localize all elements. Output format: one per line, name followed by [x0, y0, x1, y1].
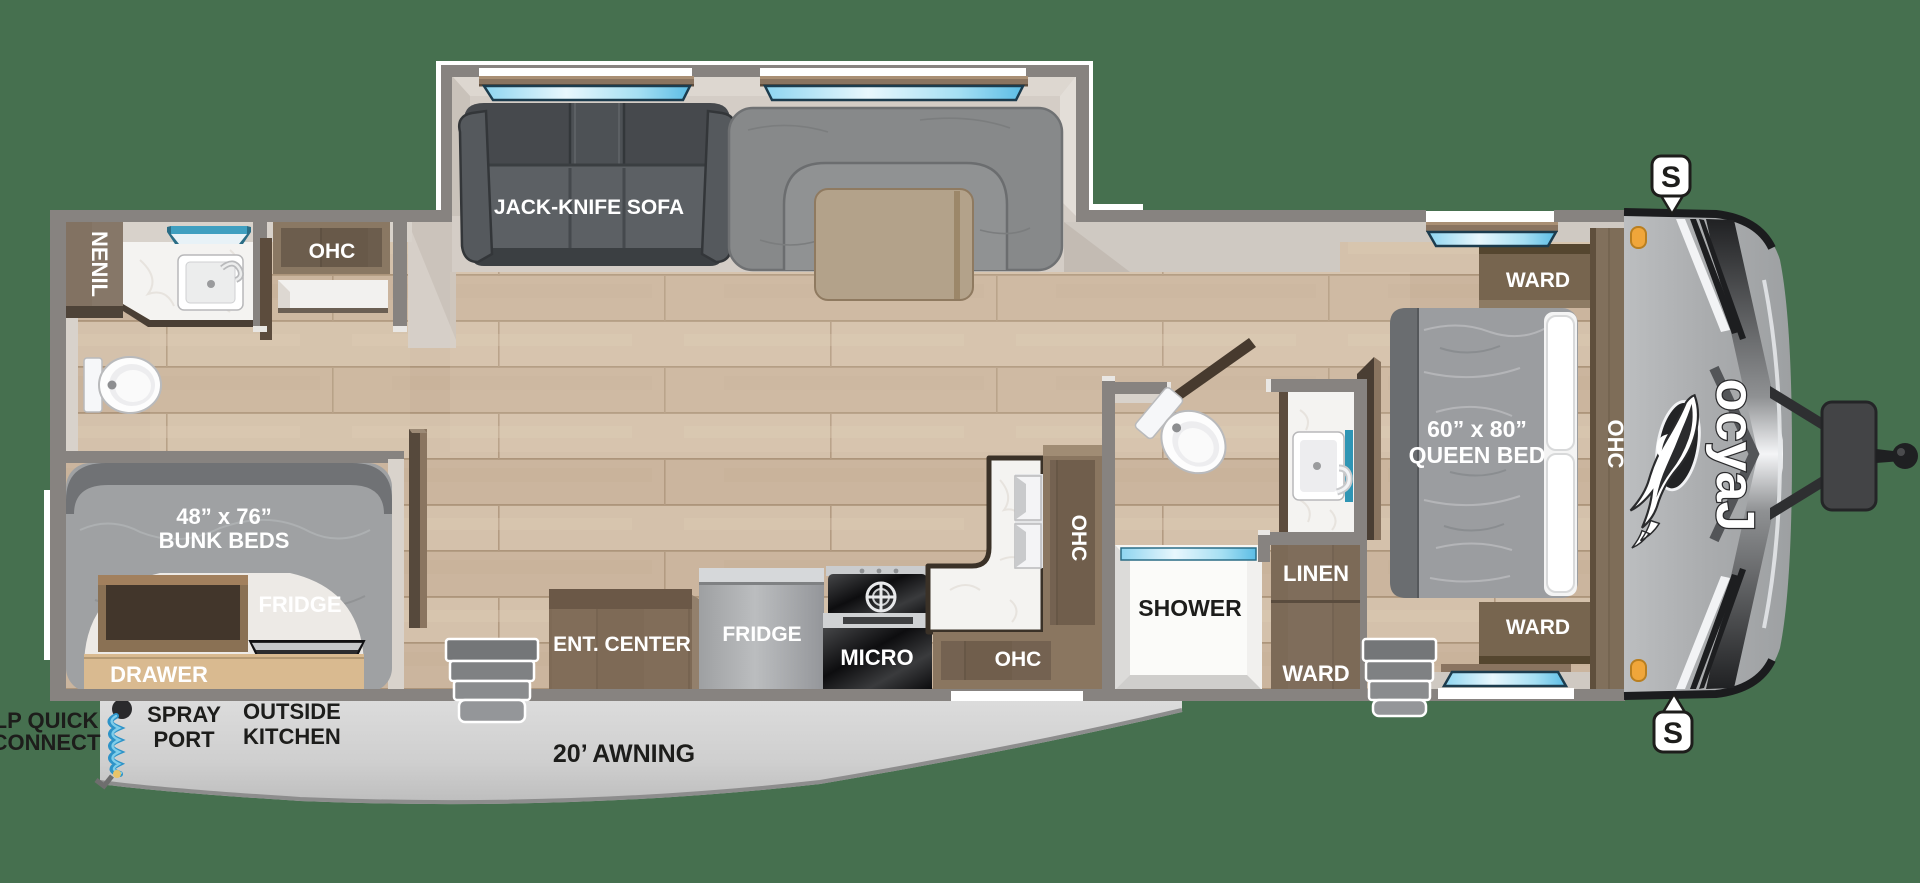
- svg-text:WARD: WARD: [1282, 661, 1349, 686]
- svg-text:BUNK BEDS: BUNK BEDS: [159, 528, 290, 553]
- svg-text:LINEN: LINEN: [1283, 561, 1349, 586]
- svg-text:60” x 80”: 60” x 80”: [1427, 416, 1527, 442]
- svg-text:ENT. CENTER: ENT. CENTER: [553, 633, 691, 656]
- svg-text:S: S: [1661, 161, 1681, 194]
- svg-text:QUEEN BED: QUEEN BED: [1409, 442, 1546, 468]
- svg-text:48” x 76”: 48” x 76”: [176, 504, 271, 529]
- svg-text:DRAWER: DRAWER: [110, 662, 208, 687]
- svg-text:WARD: WARD: [1506, 269, 1570, 292]
- svg-text:OUTSIDE: OUTSIDE: [243, 699, 341, 724]
- svg-text:OHC: OHC: [995, 648, 1042, 671]
- svg-text:WARD: WARD: [1506, 616, 1570, 639]
- svg-text:S: S: [1663, 717, 1683, 750]
- svg-text:FRIDGE: FRIDGE: [258, 592, 341, 617]
- svg-text:20’ AWNING: 20’ AWNING: [553, 740, 695, 768]
- svg-text:JACK-KNIFE SOFA: JACK-KNIFE SOFA: [494, 196, 684, 219]
- svg-text:KITCHEN: KITCHEN: [243, 724, 341, 749]
- svg-text:MICRO: MICRO: [840, 645, 913, 670]
- svg-text:OHC: OHC: [309, 240, 356, 263]
- svg-text:SHOWER: SHOWER: [1138, 595, 1242, 621]
- svg-text:OHC: OHC: [1067, 515, 1090, 562]
- svg-text:PORT: PORT: [153, 727, 215, 752]
- svg-text:NENIL: NENIL: [87, 231, 112, 297]
- svg-text:SPRAY: SPRAY: [147, 702, 221, 727]
- svg-text:FRIDGE: FRIDGE: [722, 623, 801, 646]
- svg-text:CONNECT: CONNECT: [0, 730, 101, 755]
- svg-text:ocyaJ: ocyaJ: [1705, 378, 1765, 531]
